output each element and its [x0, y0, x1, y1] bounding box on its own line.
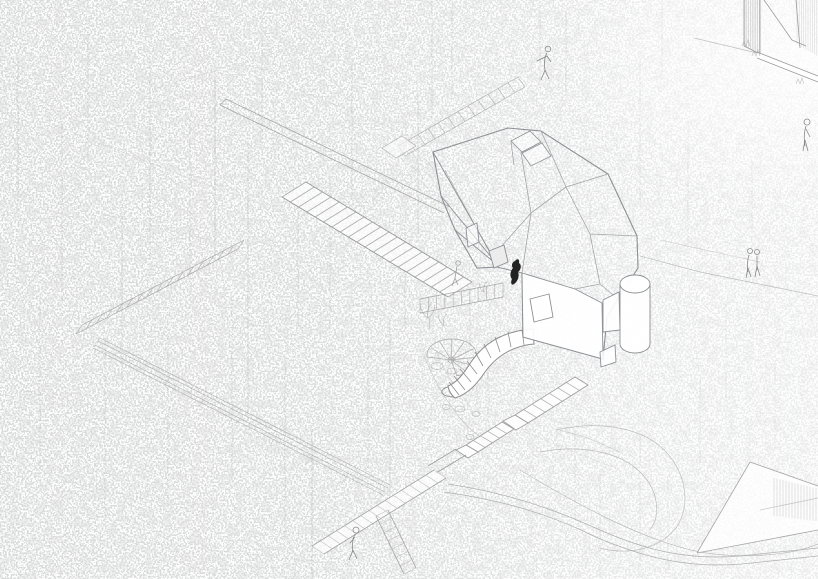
- drawing-canvas: [0, 0, 818, 579]
- cylinder-body: [620, 284, 650, 353]
- axonometric-drawing: [0, 0, 818, 579]
- cylinder-top: [620, 275, 650, 293]
- window: [530, 294, 553, 322]
